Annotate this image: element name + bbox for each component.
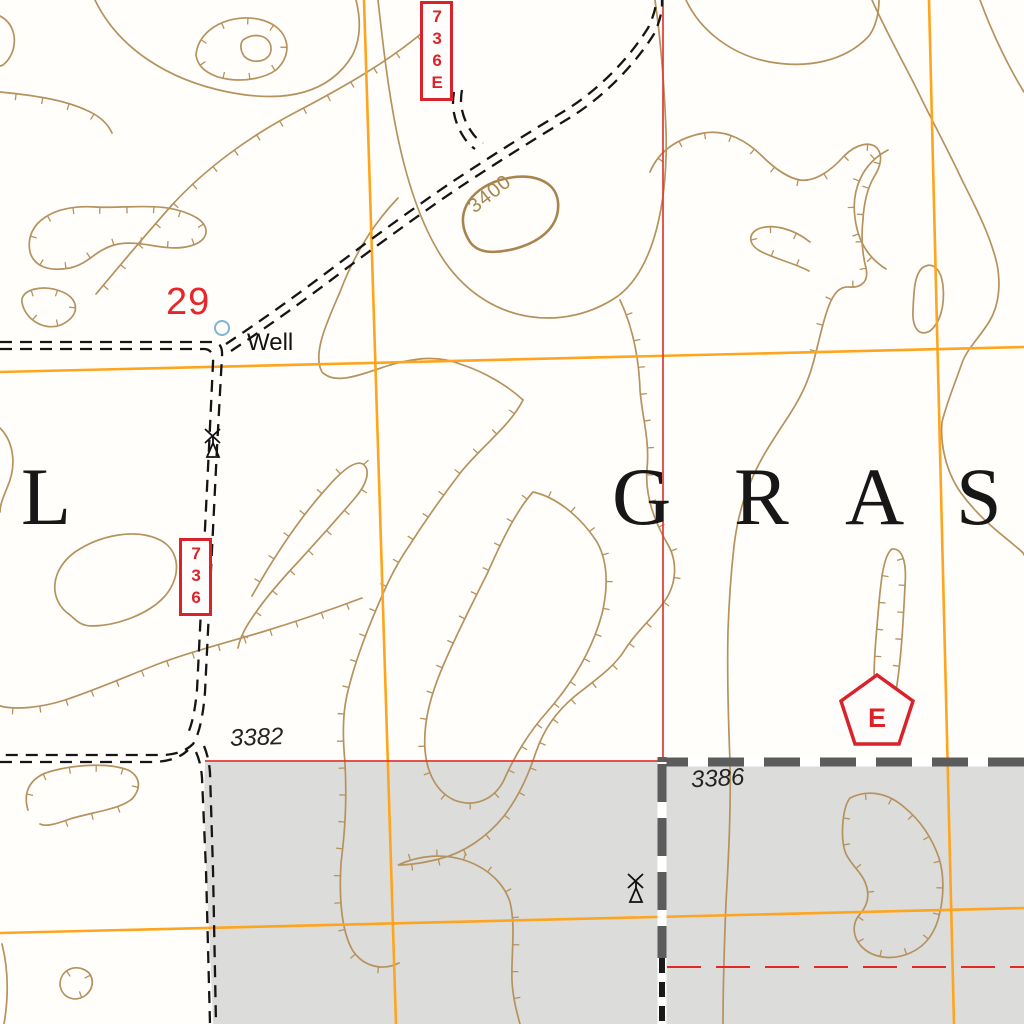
grassland-name-letter-G: G [612, 450, 671, 544]
well-icon [215, 321, 229, 335]
grassland-name-letter-L: L [21, 450, 71, 544]
boundary-corner-pentagon: E [841, 675, 913, 744]
route-marker-736: 736 [179, 538, 212, 616]
spot-elevation-3386: 3386 [690, 764, 745, 795]
grassland-name-letter-S: S [956, 450, 1002, 544]
spot-elevation-3382: 3382 [230, 723, 284, 753]
pentagon-letter: E [868, 703, 886, 733]
topo-map-canvas: E 736E 736 29 Well 3400 3382 3386 L G R … [0, 0, 1024, 1024]
grassland-name-letter-R: R [734, 450, 789, 544]
grid-horizontal-north [0, 347, 1024, 372]
route-marker-736E: 736E [420, 1, 453, 101]
shaded-land-parcel [204, 762, 1024, 1024]
well-label: Well [247, 329, 293, 357]
grassland-name-letter-A: A [845, 450, 904, 544]
section-number: 29 [166, 281, 210, 324]
